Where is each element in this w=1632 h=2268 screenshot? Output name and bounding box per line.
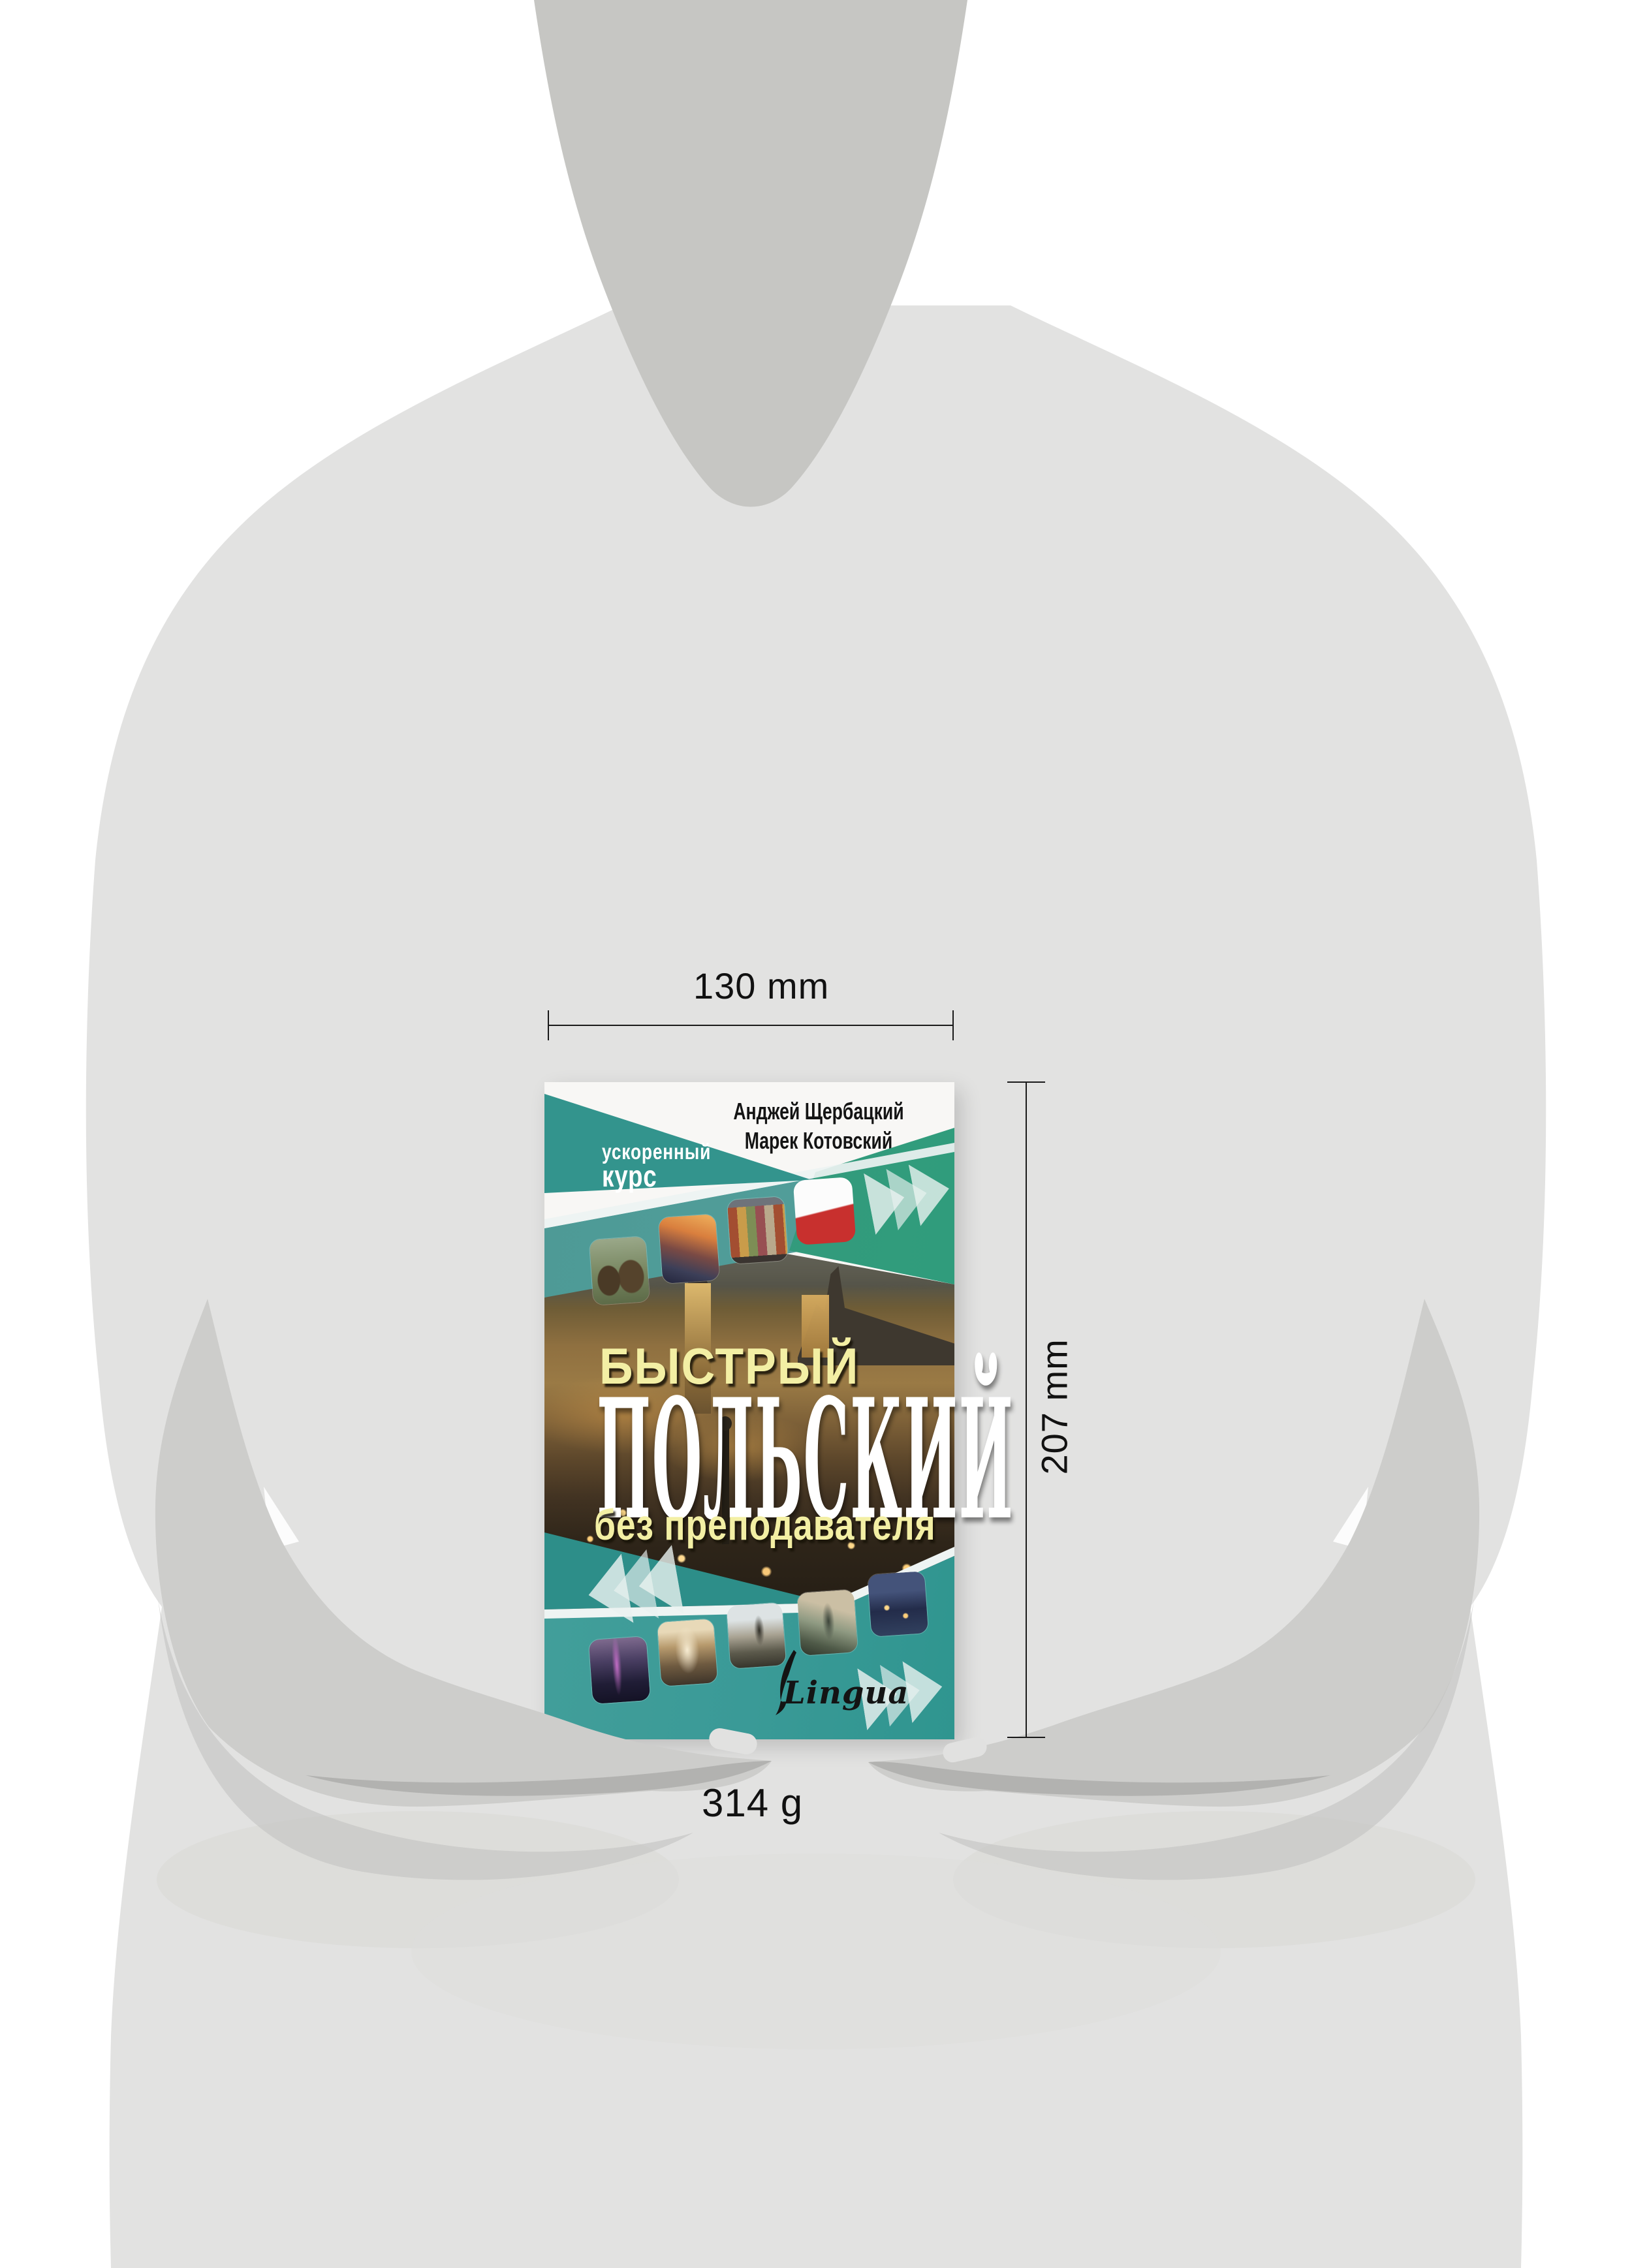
height-dimension-label: 207 mm — [1033, 1351, 1076, 1475]
weight-label: 314 g — [702, 1780, 803, 1825]
product-dimension-illustration: Анджей Щербацкий Марек Котовский ускорен… — [0, 0, 1632, 2268]
width-dimension-line — [548, 1025, 953, 1026]
left-arm-hand — [155, 1299, 772, 1807]
height-tick-top — [1007, 1081, 1045, 1083]
left-thumb-nail — [708, 1726, 759, 1756]
lap-shadow-center — [411, 1854, 1221, 2049]
width-dimension-label: 130 mm — [693, 965, 829, 1007]
height-dimension-line — [1026, 1082, 1027, 1737]
right-arm-hand — [868, 1299, 1479, 1807]
height-tick-bottom — [1007, 1737, 1045, 1738]
width-tick-right — [952, 1010, 954, 1040]
width-tick-left — [548, 1010, 549, 1040]
hands-holding-book — [0, 0, 1632, 2268]
